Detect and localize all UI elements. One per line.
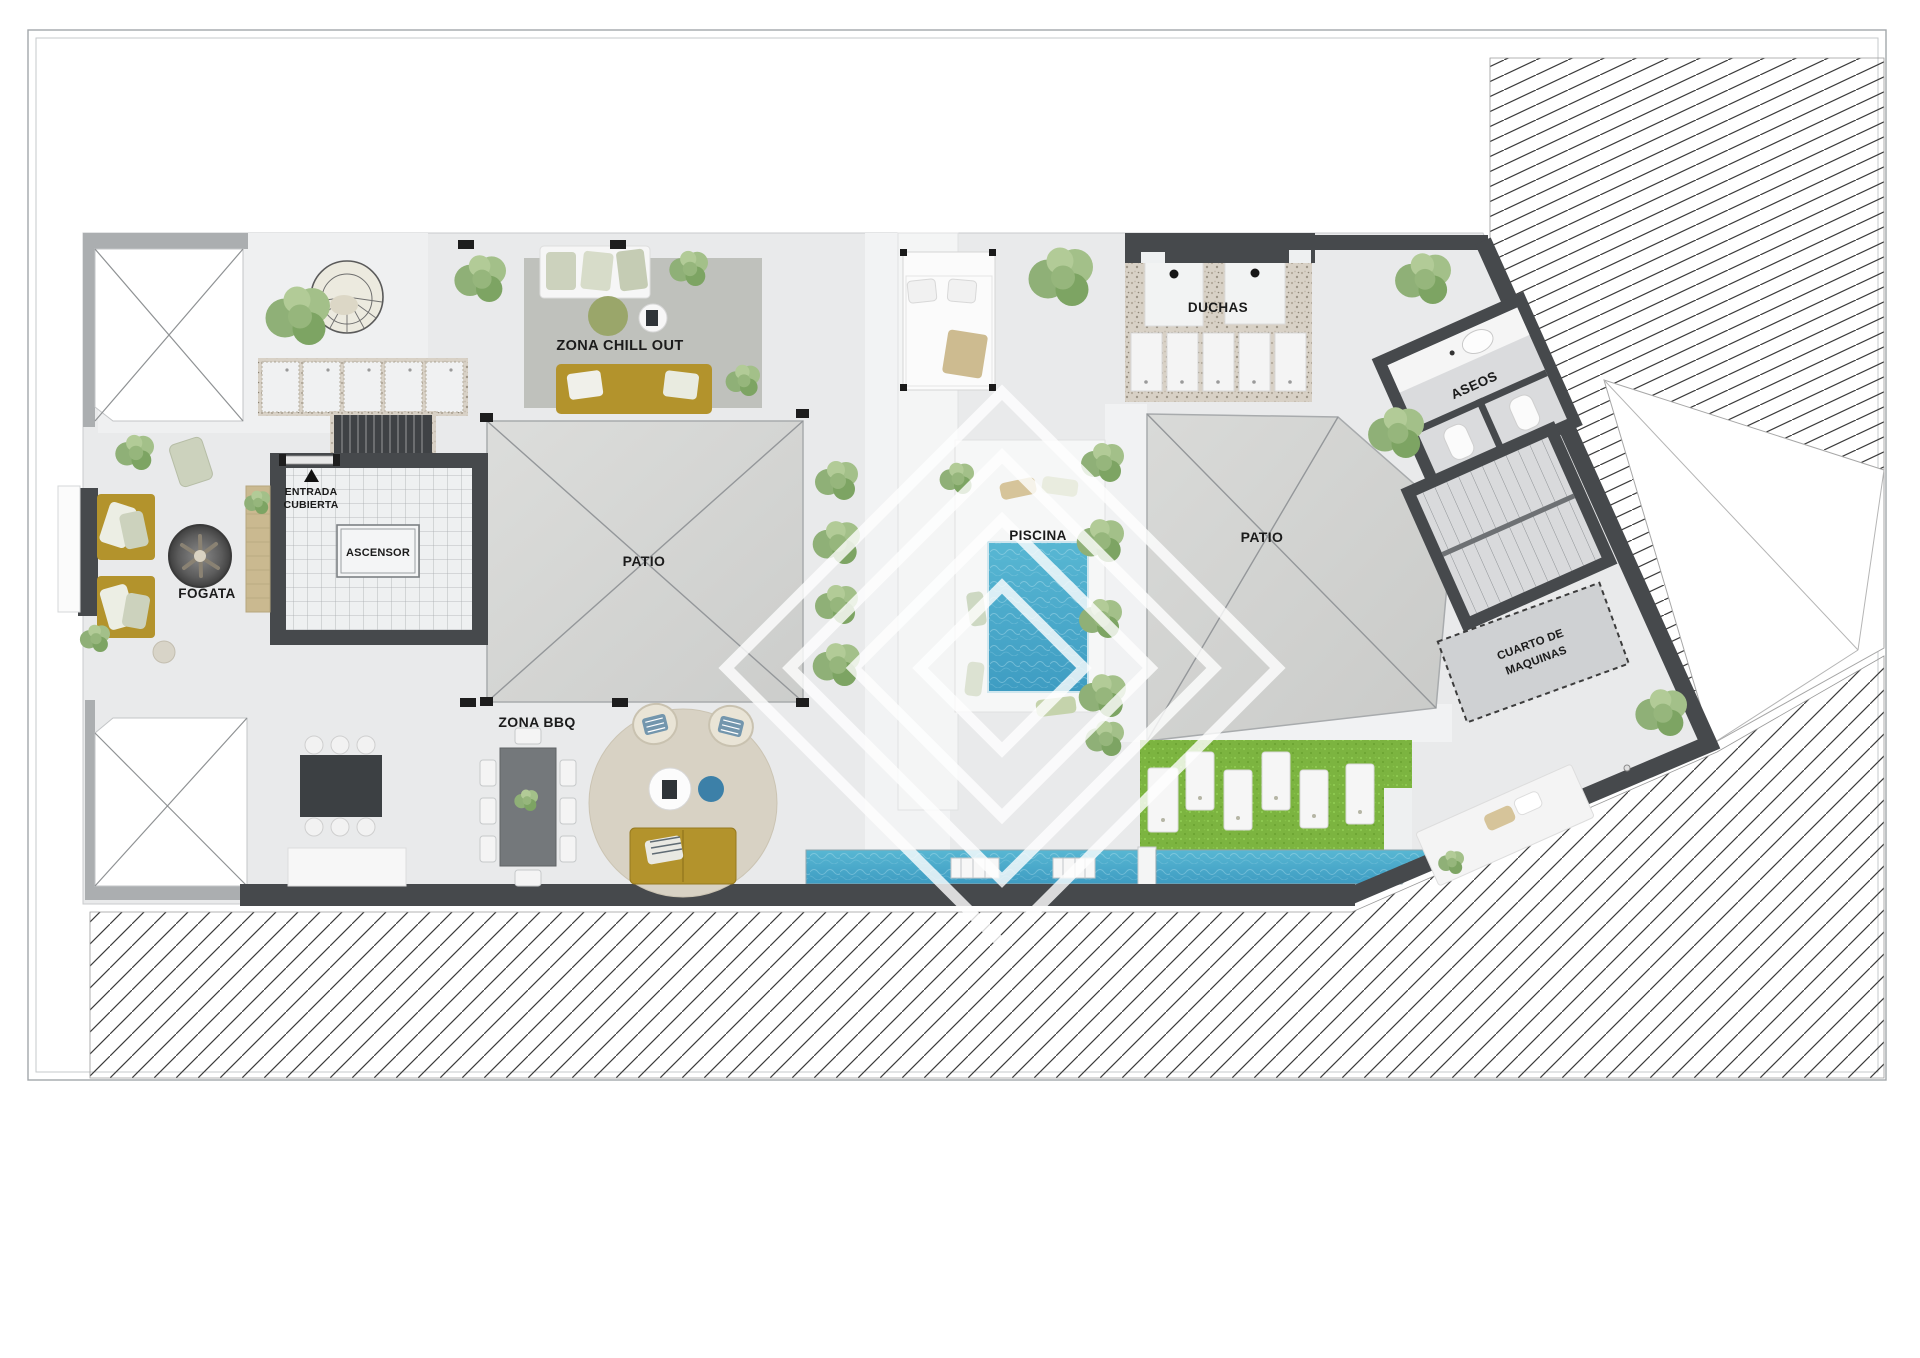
label-patio-right: PATIO [1241, 529, 1284, 545]
label-zona-chill-out: ZONA CHILL OUT [556, 338, 683, 354]
pillow [947, 279, 977, 303]
neighbor-balcony [58, 486, 80, 612]
channel-bridge [1138, 847, 1156, 887]
label-duchas: DUCHAS [1188, 300, 1248, 315]
daybed [900, 249, 996, 391]
wall-fogata-back [78, 488, 98, 616]
pouf [153, 641, 175, 663]
shower-mats [1131, 333, 1306, 391]
shower-plate [1145, 258, 1203, 326]
floor-plan-page: ASEOS CUARTO DE MAQUINAS ASCENSOR [0, 0, 1920, 1358]
counter [288, 848, 406, 886]
pillow [566, 370, 603, 400]
label-patio-left: PATIO [623, 553, 666, 569]
kitchen-island [300, 755, 382, 817]
label-piscina: PISCINA [1009, 528, 1067, 543]
shower-drain [1170, 270, 1179, 279]
pillow [907, 279, 937, 304]
label-ascensor: ASCENSOR [346, 547, 410, 559]
label-zona-bbq: ZONA BBQ [498, 714, 575, 730]
wall-top-right [1308, 235, 1488, 250]
pouf-blue [698, 776, 724, 802]
pillow [663, 370, 700, 400]
lap-pool-channel [806, 847, 1430, 887]
wall-bottom [240, 884, 1355, 906]
chill-out-zone [524, 246, 762, 414]
skylight-void-top-left [83, 233, 248, 427]
shower-drain [1251, 269, 1260, 278]
skylight-void-bottom-left [85, 700, 247, 900]
coffee-table-round [588, 296, 628, 336]
paver-strip [258, 358, 468, 416]
elevator-stair-block: ASCENSOR [270, 453, 488, 645]
throw-blanket [942, 329, 988, 379]
label-fogata: FOGATA [178, 586, 235, 601]
label-entrada-2: CUBIERTA [283, 499, 338, 511]
duchas-area [1125, 250, 1312, 402]
floor-plan-drawing: ASEOS CUARTO DE MAQUINAS ASCENSOR [0, 0, 1920, 1358]
entrance-lintel [282, 456, 338, 464]
label-entrada-1: ENTRADA [285, 486, 338, 498]
